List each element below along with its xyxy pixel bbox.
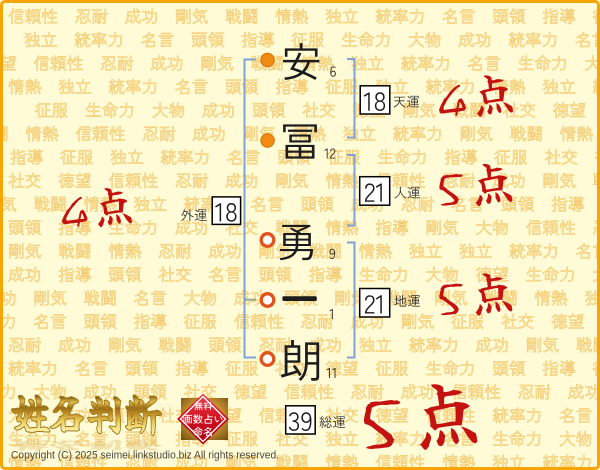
svg-text:Copyright (C) 2025 seimei.link: Copyright (C) 2025 seimei.linkstudio.biz… [11, 450, 279, 462]
